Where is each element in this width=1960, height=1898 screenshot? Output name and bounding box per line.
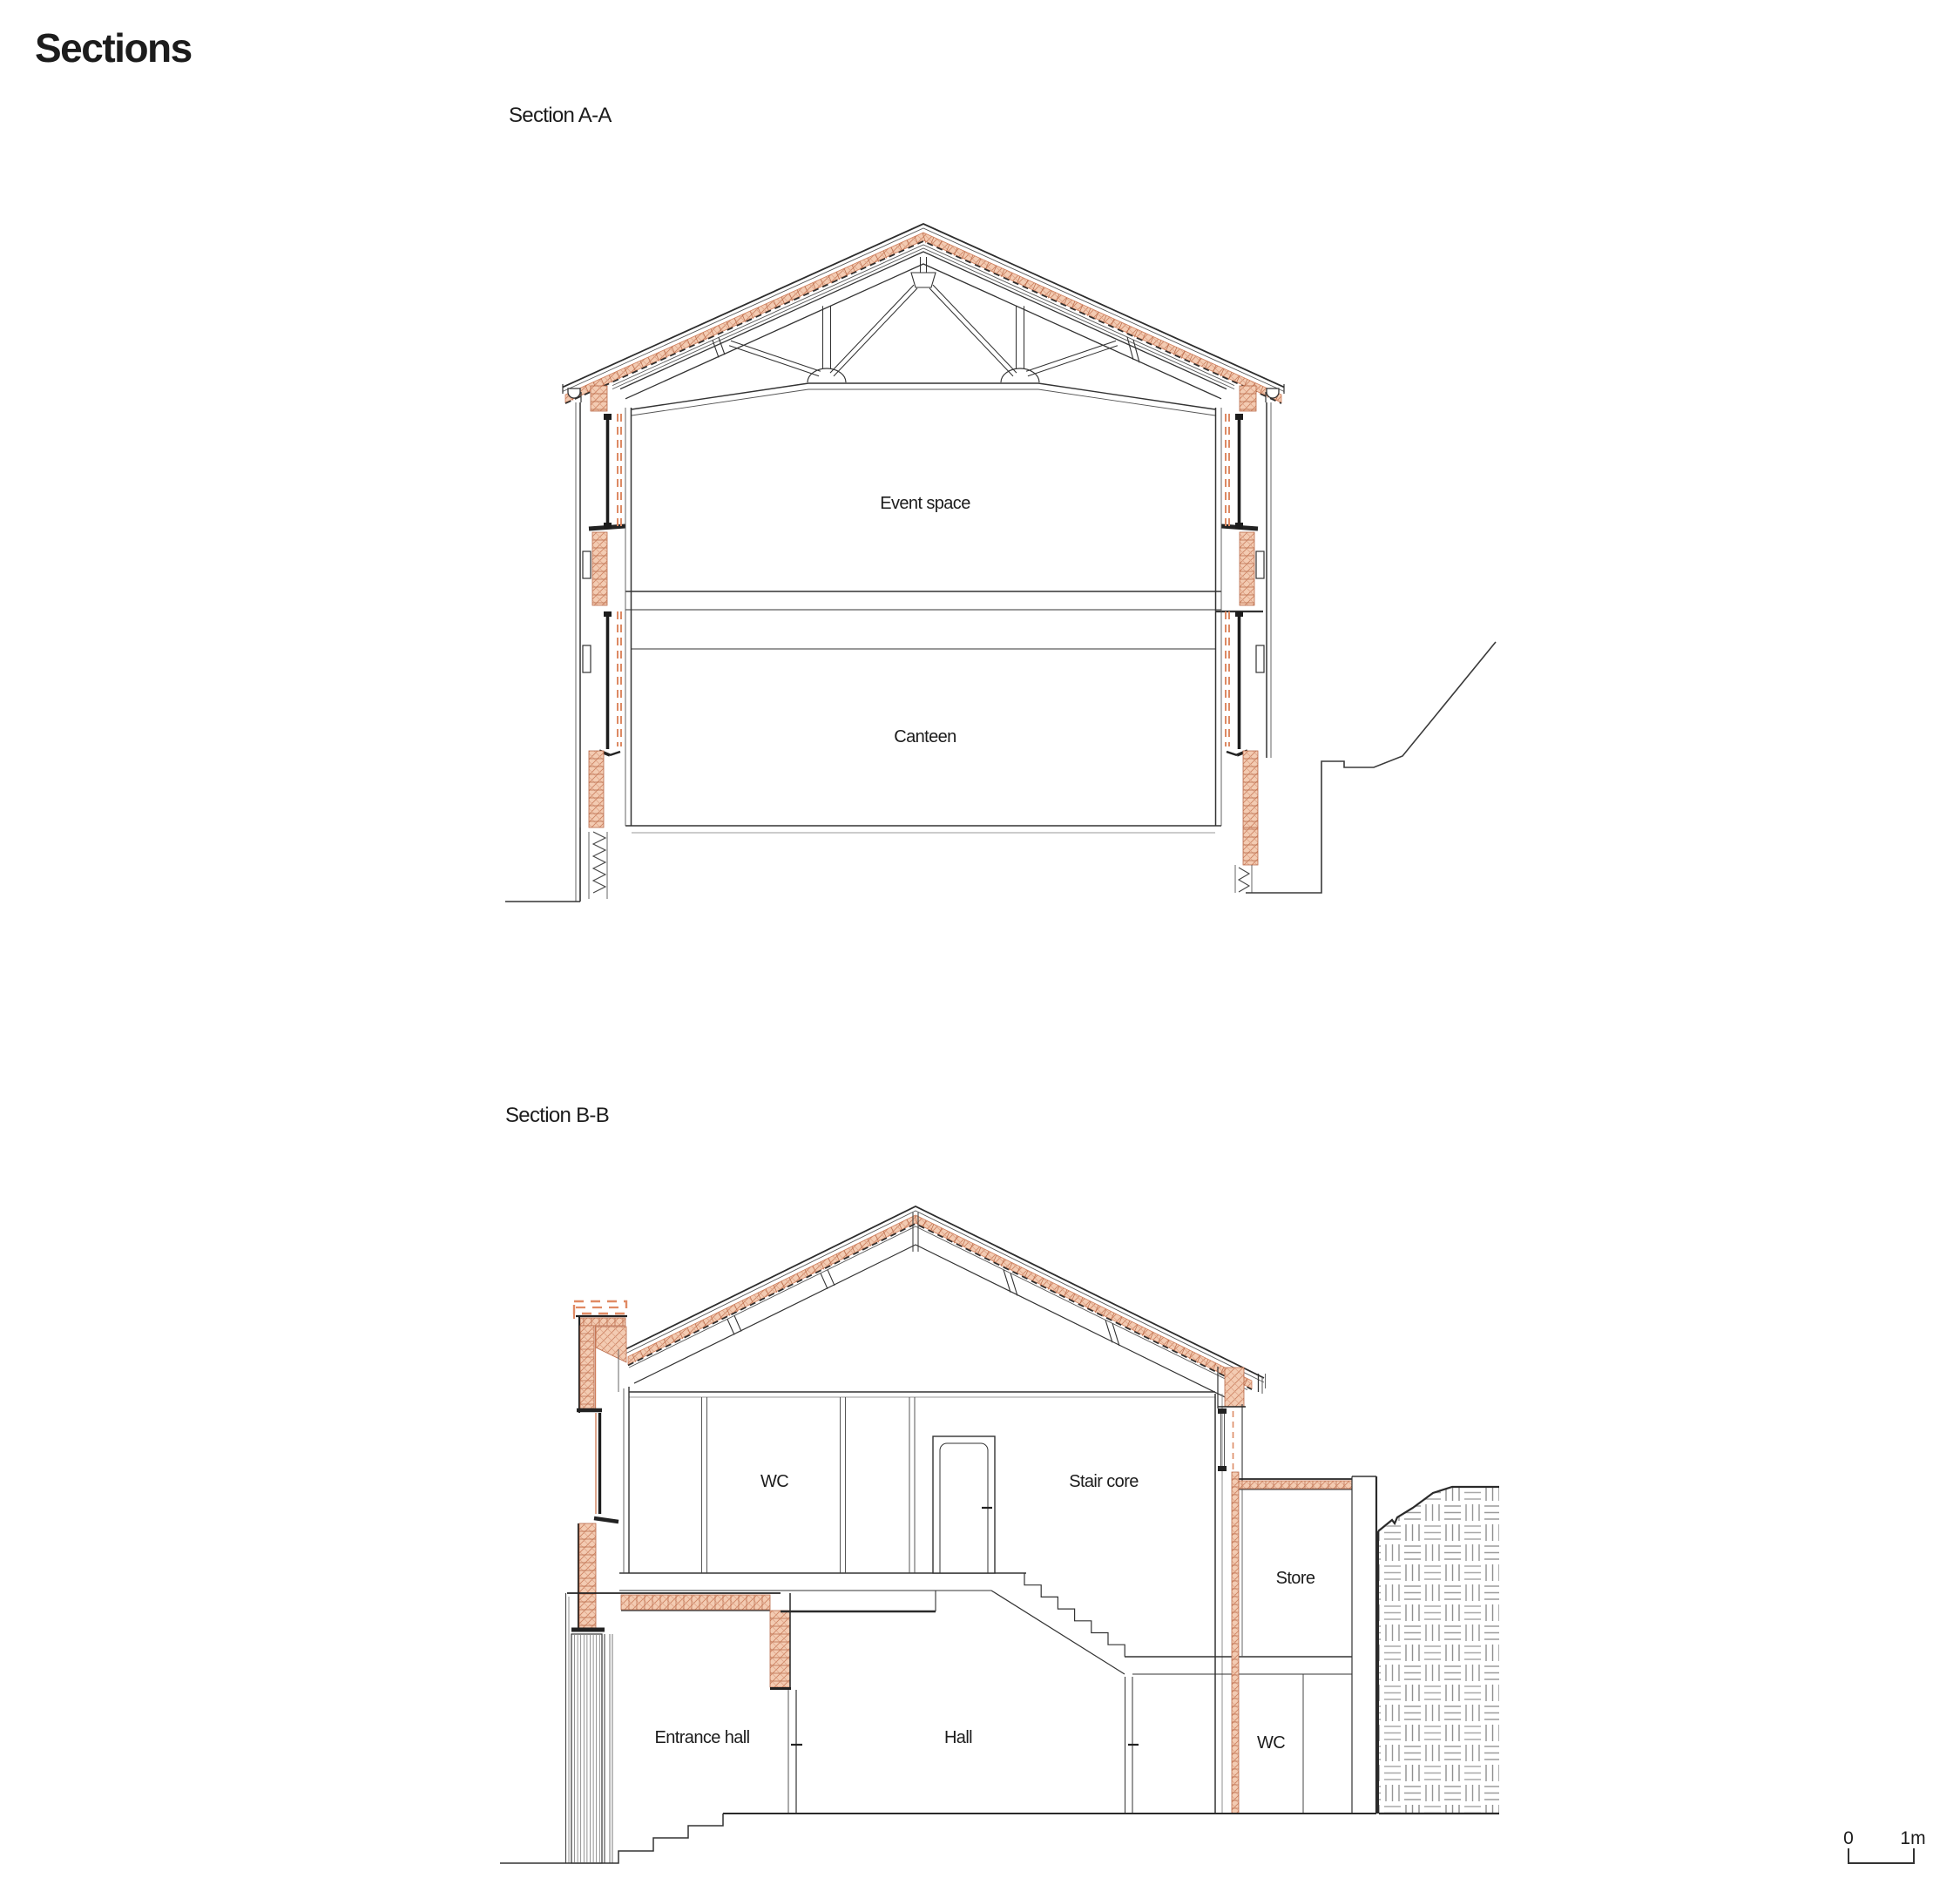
svg-text:WC: WC bbox=[1257, 1733, 1285, 1753]
svg-text:Store: Store bbox=[1276, 1569, 1315, 1588]
svg-text:Canteen: Canteen bbox=[894, 727, 956, 746]
svg-text:Sections: Sections bbox=[35, 25, 192, 71]
svg-text:Stair core: Stair core bbox=[1069, 1472, 1139, 1491]
svg-text:Section A-A: Section A-A bbox=[509, 104, 612, 127]
svg-text:1m: 1m bbox=[1900, 1828, 1925, 1848]
svg-text:0: 0 bbox=[1843, 1828, 1854, 1848]
svg-text:Event space: Event space bbox=[880, 494, 970, 513]
svg-text:Section B-B: Section B-B bbox=[505, 1104, 609, 1127]
svg-text:Hall: Hall bbox=[944, 1728, 972, 1747]
svg-text:Entrance hall: Entrance hall bbox=[655, 1728, 750, 1747]
svg-text:WC: WC bbox=[760, 1472, 788, 1491]
